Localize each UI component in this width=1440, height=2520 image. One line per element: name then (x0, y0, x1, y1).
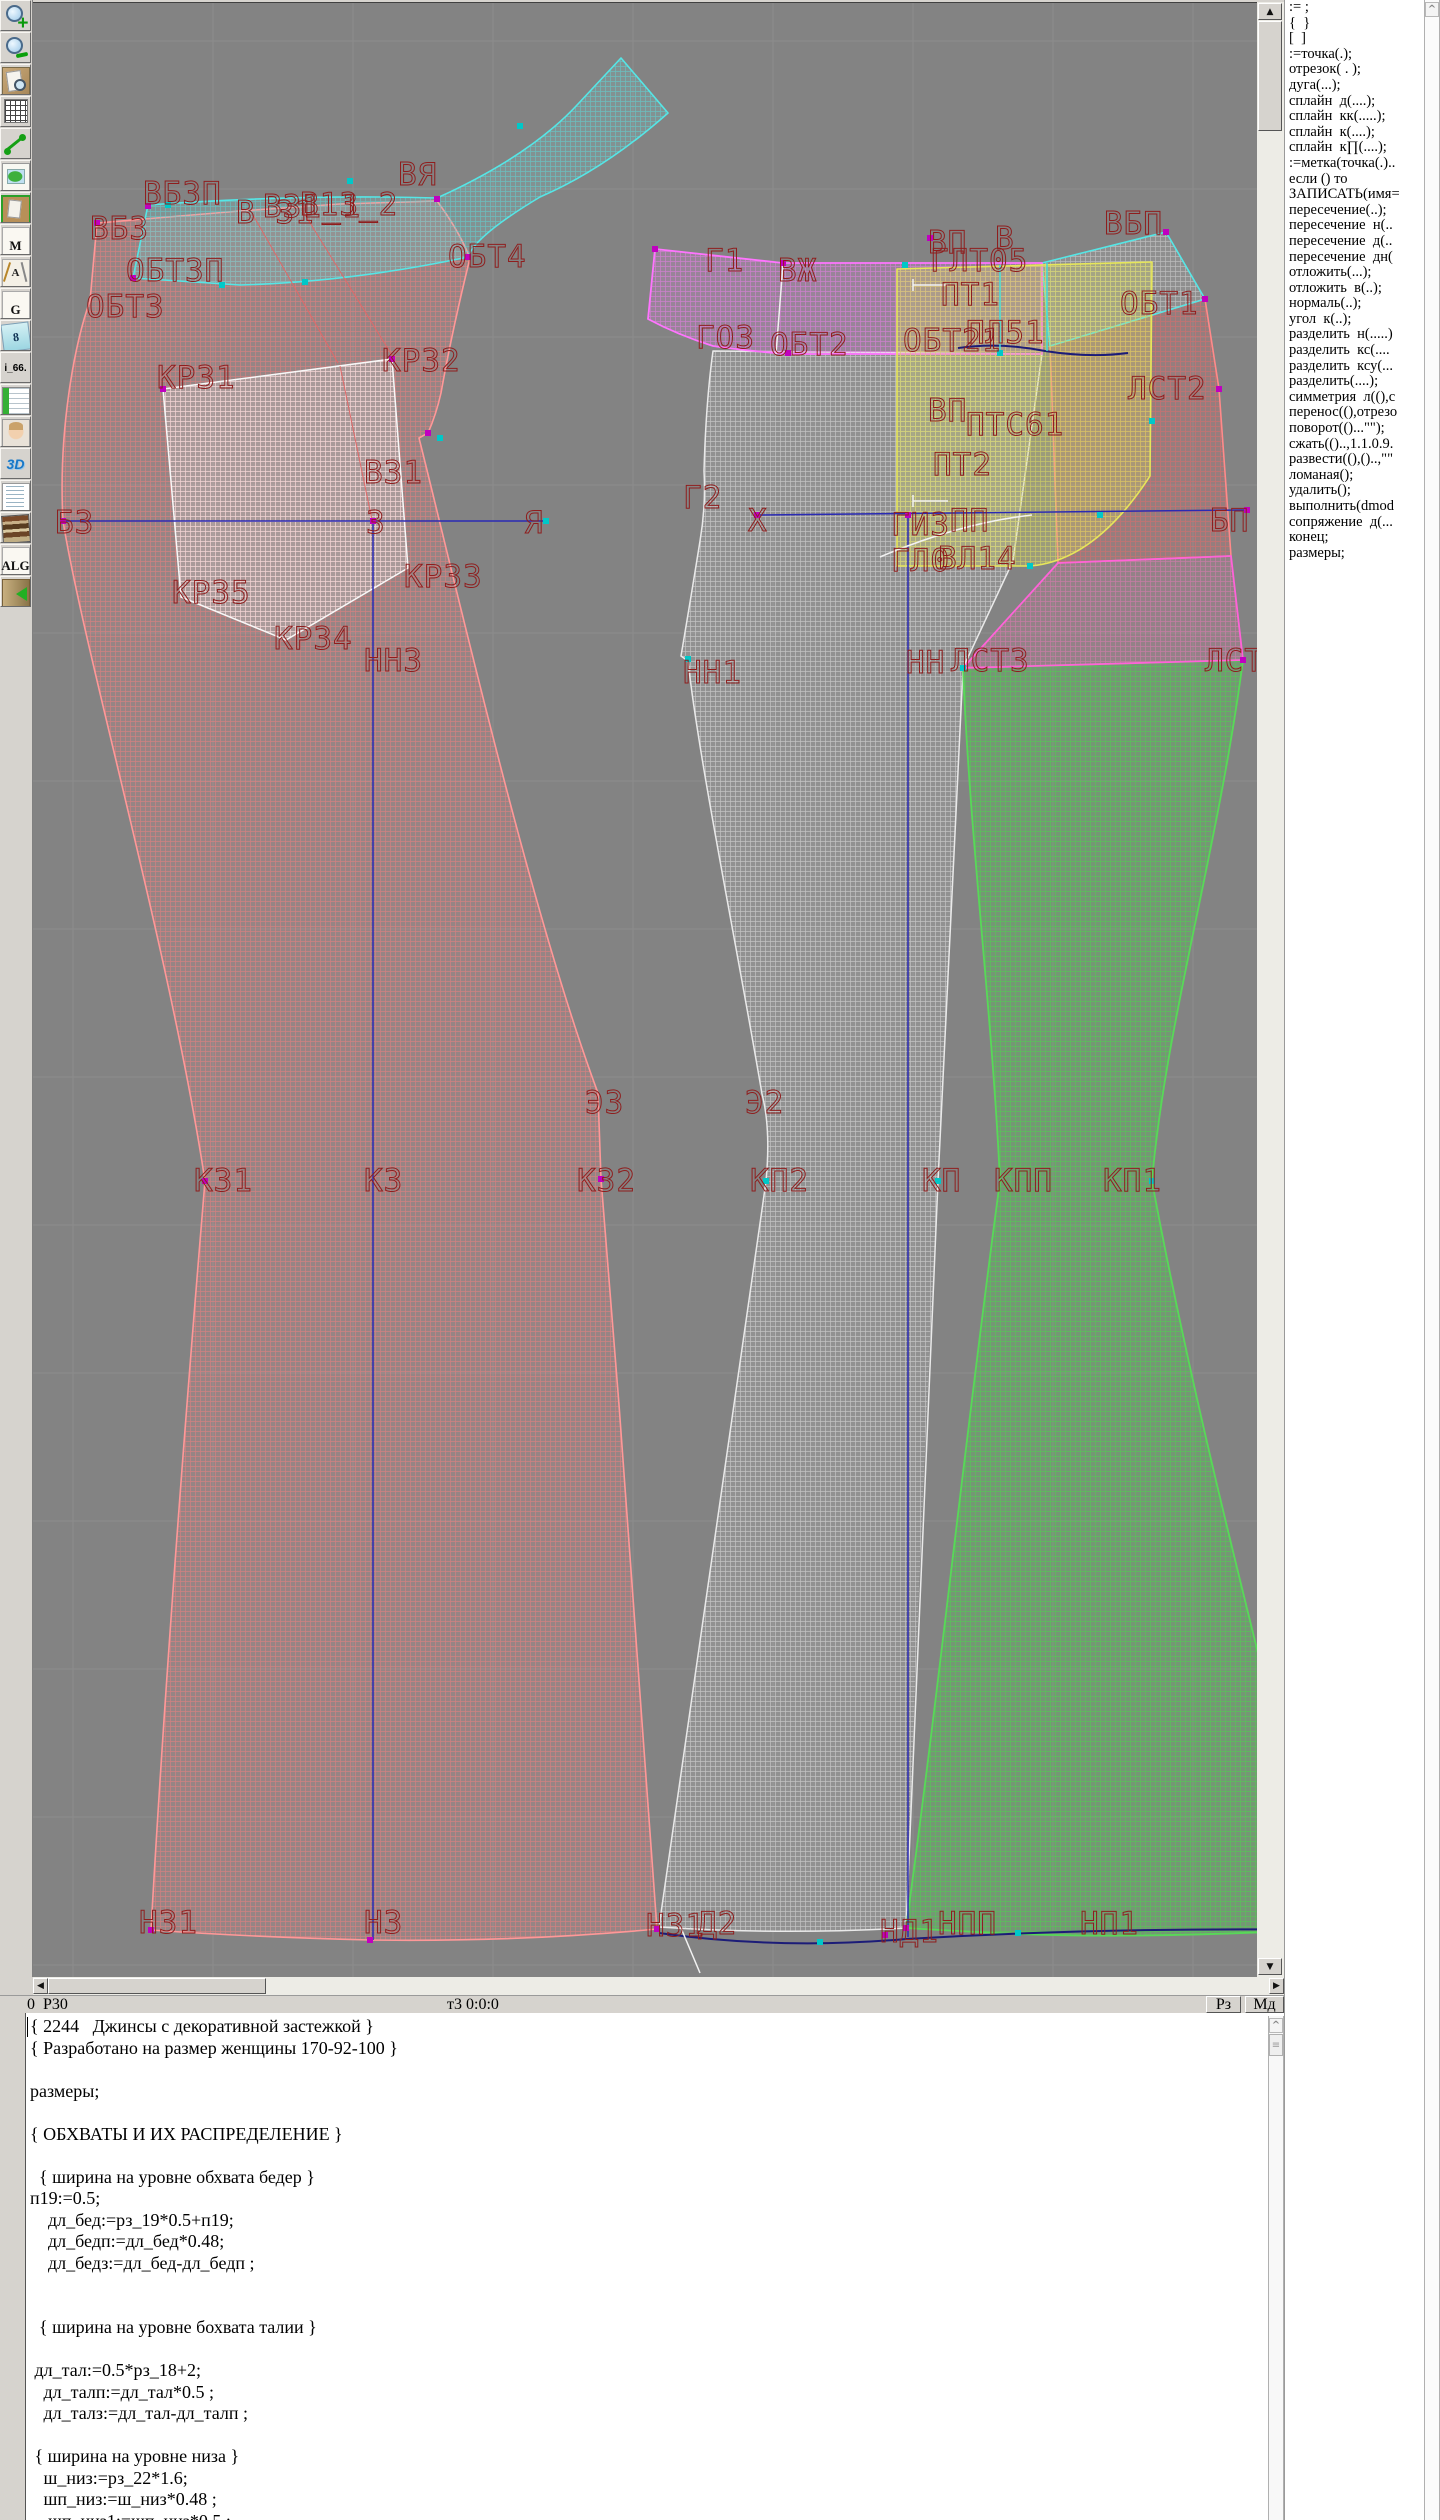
svg-text:Я: Я (524, 505, 544, 541)
command-item[interactable]: отрезок( . ); (1285, 62, 1424, 78)
svg-text:НН: НН (906, 645, 945, 681)
code-line (30, 2339, 1264, 2361)
editor-scrollbar[interactable] (1268, 2016, 1284, 2520)
code-line: { ОБХВАТЫ И ИХ РАСПРЕДЕЛЕНИЕ } (30, 2124, 1264, 2146)
svg-text:Э2: Э2 (745, 1085, 784, 1121)
command-item[interactable]: пересечение д(.. (1285, 234, 1424, 250)
svg-text:КП1: КП1 (1103, 1163, 1162, 1199)
pattern-drawing[interactable]: ВБЗПВБЗВ 31В31_1В13_2ВЯОБТЗПОБТ3ОБТ4КР31… (33, 3, 1257, 1978)
command-item[interactable]: нормаль(..); (1285, 296, 1424, 312)
svg-text:КР35: КР35 (172, 575, 251, 611)
status-bar: 0 Р30 т3 0:0:0 Рз Мд (0, 1995, 1284, 2013)
toolbar-text-list-button[interactable] (0, 480, 31, 511)
command-item[interactable]: := ; (1285, 0, 1424, 16)
editor-scroll-thumb[interactable]: ≡ (1269, 2034, 1283, 2056)
command-item[interactable]: удалить(); (1285, 483, 1424, 499)
code-line (30, 2102, 1264, 2124)
svg-text:Н31: Н31 (139, 1905, 198, 1941)
i66-icon: i_66. (3, 355, 29, 381)
toolbar-zoom-out-button[interactable] (0, 32, 31, 63)
pattern-piece-side-green[interactable] (906, 660, 1257, 1936)
command-item[interactable]: :=метка(точка(.).. (1285, 156, 1424, 172)
svg-text:ГИЗ: ГИЗ (891, 507, 950, 543)
canvas-scroll-up-icon[interactable]: ▲ (1258, 3, 1282, 20)
pattern-canvas[interactable]: ВБЗПВБЗВ 31В31_1В13_2ВЯОБТЗПОБТ3ОБТ4КР31… (33, 2, 1257, 1978)
code-line: дл_бедз:=дл_бед-дл_бедп ; (30, 2253, 1264, 2275)
command-item[interactable]: { } (1285, 16, 1424, 32)
exit-icon (2, 579, 30, 607)
svg-text:ПЛ51: ПЛ51 (966, 315, 1045, 351)
command-item[interactable]: дуга(...); (1285, 78, 1424, 94)
canvas-vscroll-thumb[interactable] (1258, 21, 1282, 131)
toolbar-portrait-button[interactable] (0, 416, 31, 447)
code-line: дл_тал:=0.5*рз_18+2; (30, 2360, 1264, 2382)
command-item[interactable]: разделить ксу(... (1285, 359, 1424, 375)
command-panel: := ;{ }[ ]:=точка(.);отрезок( . );дуга(.… (1284, 0, 1424, 2520)
svg-text:ГО3: ГО3 (696, 320, 755, 356)
svg-text:В13_2: В13_2 (300, 187, 398, 223)
command-item[interactable]: отложить(...); (1285, 265, 1424, 281)
svg-text:НН3: НН3 (364, 643, 423, 679)
svg-text:ВБЗ: ВБЗ (90, 211, 149, 247)
zoom-out-icon (3, 35, 29, 61)
svg-text:ПТС61: ПТС61 (966, 407, 1064, 443)
segment-icon (3, 131, 29, 157)
svg-text:ЛСТ4: ЛСТ4 (1205, 643, 1257, 679)
code-line (30, 2145, 1264, 2167)
svg-text:ЛСТ2: ЛСТ2 (1128, 371, 1207, 407)
command-item[interactable]: отложить в(..); (1285, 281, 1424, 297)
svg-text:ГЛТ05: ГЛТ05 (930, 243, 1028, 279)
code-line: { ширина на уровне бохвата талии } (30, 2317, 1264, 2339)
toolbar-books-button[interactable] (0, 512, 31, 543)
svg-text:КП2: КП2 (750, 1163, 809, 1199)
toolbar-draw-tools-button[interactable]: A (0, 256, 31, 287)
pattern-cad-window: MAG8i_66.3DALG ВБЗПВБЗВ 31В31_1В13_2ВЯОБ… (0, 0, 1440, 2520)
text-caret (27, 2017, 28, 2037)
command-item[interactable]: пересечение н(.. (1285, 218, 1424, 234)
document-g-icon: G (2, 291, 30, 319)
command-panel-scrollbar[interactable] (1424, 0, 1440, 2520)
command-item[interactable]: размеры; (1285, 546, 1424, 562)
grid-icon (4, 99, 28, 123)
map-icon (2, 163, 30, 191)
code-line (30, 2296, 1264, 2318)
toolbar-i66-button[interactable]: i_66. (0, 352, 31, 383)
toolbar-print-preview-button[interactable] (0, 64, 31, 95)
toolbar-grid-button[interactable] (0, 96, 31, 127)
command-item[interactable]: разделить(....); (1285, 374, 1424, 390)
svg-text:К31: К31 (194, 1163, 253, 1199)
svg-text:КР31: КР31 (157, 360, 236, 396)
rz-button[interactable]: Рз (1206, 1996, 1241, 2013)
svg-text:ВЖ: ВЖ (778, 253, 817, 289)
editor-gutter (0, 2013, 26, 2520)
svg-text:КПП: КПП (994, 1163, 1053, 1199)
algorithms-icon: ALG (2, 547, 30, 575)
code-line: шп_низ:=ш_низ*0.48 ; (30, 2489, 1264, 2511)
svg-text:ПП: ПП (950, 503, 989, 539)
command-item[interactable]: ЗАПИСАТЬ(имя= (1285, 187, 1424, 203)
svg-text:НЗ1: НЗ1 (646, 1908, 705, 1944)
svg-text:КП: КП (922, 1163, 961, 1199)
toolbar-sizes-button[interactable]: 8 (0, 320, 31, 351)
command-item[interactable]: сплайн к∏(....); (1285, 140, 1424, 156)
text-list-icon (2, 483, 30, 511)
books-icon (1, 514, 31, 543)
toolbar-document-m-button[interactable]: M (0, 224, 31, 255)
pattern-frame-icon (1, 195, 31, 223)
svg-text:НН1: НН1 (683, 655, 742, 691)
svg-text:ОБТ3: ОБТ3 (86, 289, 165, 325)
command-item[interactable]: если () то (1285, 172, 1424, 188)
code-line: дл_бед:=рз_19*0.5+п19; (30, 2210, 1264, 2232)
command-item[interactable]: ломаная(); (1285, 468, 1424, 484)
svg-text:ОБТЗП: ОБТЗП (126, 253, 224, 289)
md-button[interactable]: Мд (1245, 1996, 1284, 2013)
command-item[interactable]: перенос((),отрезо (1285, 405, 1424, 421)
svg-text:НПП: НПП (938, 1906, 997, 1942)
table-icon (2, 387, 30, 415)
code-line (30, 2274, 1264, 2296)
command-item[interactable]: сплайн к(....); (1285, 125, 1424, 141)
svg-text:Н3: Н3 (364, 1905, 403, 1941)
code-line: п19:=0.5; (30, 2188, 1264, 2210)
command-item[interactable]: сплайн кк(.....); (1285, 109, 1424, 125)
svg-text:К3: К3 (364, 1163, 403, 1199)
toolbar-algorithms-button[interactable]: ALG (0, 544, 31, 575)
svg-text:ВБЗП: ВБЗП (143, 176, 222, 212)
canvas-scroll-down-icon[interactable]: ▼ (1258, 1958, 1282, 1975)
toolbar-pattern-frame-button[interactable] (0, 192, 31, 223)
svg-text:ВП: ВП (928, 393, 967, 429)
command-item[interactable]: пересечение(..); (1285, 203, 1424, 219)
svg-text:ЛСТ3: ЛСТ3 (951, 643, 1030, 679)
sizes-icon: 8 (0, 321, 31, 351)
svg-text:КР32: КР32 (382, 343, 461, 379)
canvas-hscroll-thumb[interactable] (48, 1978, 266, 1994)
canvas-vscrollbar[interactable] (1257, 2, 1284, 1977)
command-item[interactable]: сплайн д(....); (1285, 94, 1424, 110)
view-3d-icon: 3D (3, 451, 29, 477)
zoom-in-icon (3, 3, 29, 29)
svg-text:К32: К32 (577, 1163, 636, 1199)
draw-tools-icon: A (2, 259, 30, 287)
svg-text:НД1: НД1 (880, 1914, 939, 1950)
command-item[interactable]: развести((),()..,"" (1285, 452, 1424, 468)
canvas-scroll-right-icon[interactable]: ▶ (1269, 1978, 1284, 1994)
code-line: { 2244 Джинсы с декоративной застежкой } (30, 2016, 1264, 2038)
svg-text:ОБТ4: ОБТ4 (448, 239, 527, 275)
editor-scroll-up-icon[interactable]: ^ (1269, 2018, 1283, 2033)
command-item[interactable]: симметрия л((),с (1285, 390, 1424, 406)
code-editor[interactable]: { 2244 Джинсы с декоративной застежкой }… (0, 2013, 1284, 2520)
command-item[interactable]: пересечение дн( (1285, 250, 1424, 266)
svg-text:ВЯ: ВЯ (398, 157, 437, 193)
code-line: { ширина на уровне низа } (30, 2446, 1264, 2468)
code-line (30, 2425, 1264, 2447)
toolbar-view-3d-button[interactable]: 3D (0, 448, 31, 479)
svg-text:З: З (366, 505, 386, 541)
command-item[interactable]: :=точка(.); (1285, 47, 1424, 63)
toolbar-segment-button[interactable] (0, 128, 31, 159)
toolbar-map-button[interactable] (0, 160, 31, 191)
code-line: { Разработано на размер женщины 170-92-1… (30, 2038, 1264, 2060)
toolbar-table-button[interactable] (0, 384, 31, 415)
svg-text:Г2: Г2 (683, 480, 722, 516)
svg-text:Х: Х (748, 503, 768, 539)
svg-text:КР34: КР34 (274, 621, 353, 657)
toolbar-zoom-in-button[interactable] (0, 0, 31, 31)
status-time: т3 0:0:0 (447, 1996, 499, 2014)
command-item[interactable]: разделить н(.....) (1285, 327, 1424, 343)
svg-text:НП1: НП1 (1080, 1906, 1139, 1942)
document-m-icon: M (2, 227, 30, 255)
code-line: дл_бедп:=дл_бед*0.48; (30, 2231, 1264, 2253)
svg-text:ПТ2: ПТ2 (933, 447, 992, 483)
status-left: 0 Р30 (27, 1996, 68, 2014)
svg-text:Д2: Д2 (698, 1906, 737, 1942)
svg-text:КР33: КР33 (404, 559, 483, 595)
command-item[interactable]: разделить кс(.... (1285, 343, 1424, 359)
print-preview-icon (2, 67, 30, 95)
code-line: размеры; (30, 2081, 1264, 2103)
svg-text:БЗ: БЗ (55, 505, 94, 541)
svg-text:БП: БП (1210, 503, 1249, 539)
code-line: шп_низ1:=шп_низ*0.5 ; (30, 2511, 1264, 2520)
svg-text:ПТ1: ПТ1 (941, 277, 1000, 313)
code-line: ш_низ:=рз_22*1.6; (30, 2468, 1264, 2490)
command-item[interactable]: поворот(()...""); (1285, 421, 1424, 437)
command-item[interactable]: конец; (1285, 530, 1424, 546)
code-line: дл_талз:=дл_тал-дл_талп ; (30, 2403, 1264, 2425)
portrait-icon (2, 419, 30, 447)
svg-text:В31: В31 (364, 455, 423, 491)
toolbar-exit-button[interactable] (0, 576, 31, 607)
command-item[interactable]: [ ] (1285, 31, 1424, 47)
command-item[interactable]: выполнить(dmod (1285, 499, 1424, 515)
toolbar-document-g-button[interactable]: G (0, 288, 31, 319)
toolbar: MAG8i_66.3DALG (0, 0, 33, 1977)
command-item[interactable]: угол к(..); (1285, 312, 1424, 328)
command-panel-scroll-up-icon[interactable]: ^ (1425, 2, 1439, 17)
svg-text:ВБП: ВБП (1104, 206, 1163, 242)
canvas-scroll-left-icon[interactable]: ◀ (33, 1978, 48, 1994)
code-line (30, 2059, 1264, 2081)
svg-text:ВЛ14: ВЛ14 (938, 541, 1017, 577)
svg-text:Г1: Г1 (705, 243, 744, 279)
code-line: { ширина на уровне обхвата бедер } (30, 2167, 1264, 2189)
svg-text:ОБТ1: ОБТ1 (1120, 286, 1199, 322)
svg-text:ЭЗ: ЭЗ (585, 1085, 624, 1121)
svg-text:ОБТ2: ОБТ2 (770, 327, 849, 363)
code-line: дл_талп:=дл_тал*0.5 ; (30, 2382, 1264, 2404)
command-item[interactable]: сжать(()..,1.1.0.9. (1285, 437, 1424, 453)
command-item[interactable]: сопряжение д(... (1285, 515, 1424, 531)
